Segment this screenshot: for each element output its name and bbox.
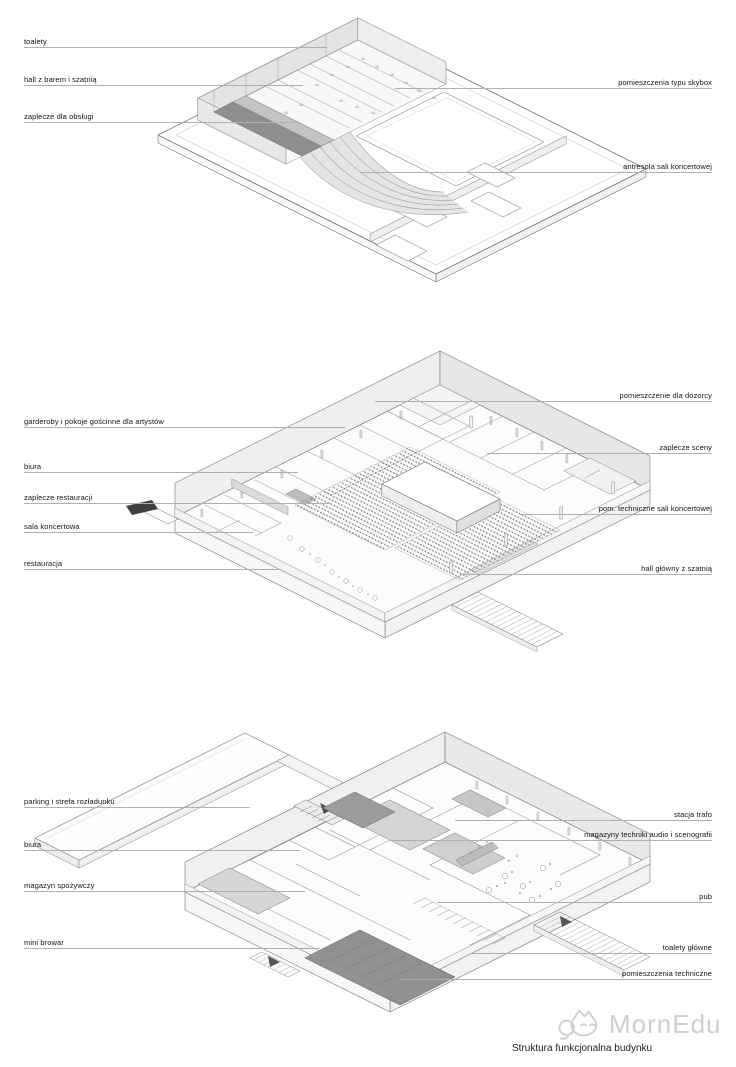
label-skybox: pomieszczenia typu skybox (395, 75, 712, 89)
label-text: magazyn spożywczy (24, 881, 94, 890)
label-hall-glowny: hall główny z szatnią (460, 561, 712, 575)
label-text: magazyny techniki audio i scenografii (584, 830, 712, 839)
label-text: hall z barem i szatnią (24, 75, 97, 84)
label-pom-techniczne-sali: pom. techniczne sali koncertowej (520, 501, 712, 515)
label-text: hall główny z szatnią (641, 564, 712, 573)
label-mini-browar: mini browar (24, 935, 320, 949)
label-zaplecze-restauracji: zaplecze restauracji (24, 490, 332, 504)
label-text: zaplecze dla obsługi (24, 112, 94, 121)
label-zaplecze-obslugi: zaplecze dla obsługi (24, 109, 300, 123)
label-text: toalety główne (663, 943, 712, 952)
label-hall-z-barem: hall z barem i szatnią (24, 72, 303, 86)
label-zaplecze-sceny: zaplecze sceny (487, 440, 712, 454)
label-magazyny-techniki: magazyny techniki audio i scenografii (390, 827, 712, 841)
label-text: stacja trafo (674, 810, 712, 819)
label-biura-middle: biura (24, 459, 298, 473)
label-text: pomieszczenie dla dozorcy (619, 391, 712, 400)
label-text: biura (24, 462, 41, 471)
top-floor-plan (158, 18, 646, 282)
label-dozorca: pomieszczenie dla dozorcy (375, 388, 712, 402)
page: toalety hall z barem i szatnią zaplecze … (0, 0, 736, 1067)
label-text: toalety (24, 37, 47, 46)
label-antresola: antresola sali koncertowej (360, 159, 712, 173)
label-stacja-trafo: stacja trafo (455, 807, 712, 821)
label-text: pomieszczenia typu skybox (618, 78, 712, 87)
label-text: zaplecze restauracji (24, 493, 92, 502)
label-garderoby: garderoby i pokoje gościnne dla artystów (24, 414, 345, 428)
figure-caption: Struktura funkcjonalna budynku (512, 1043, 652, 1054)
entrance-stairs (452, 592, 563, 652)
label-text: pomieszczenia techniczne (622, 969, 712, 978)
label-toalety-glowne: toalety główne (470, 940, 712, 954)
label-toalety: toalety (24, 34, 327, 48)
watermark: MornEdu (556, 1004, 722, 1044)
label-sala-koncertowa: sala koncertowa (24, 519, 253, 533)
label-text: antresola sali koncertowej (623, 162, 712, 171)
label-text: mini browar (24, 938, 64, 947)
label-text: restauracja (24, 559, 62, 568)
label-parking: parking i strefa rozładunku (24, 794, 250, 808)
label-text: biura (24, 840, 41, 849)
label-text: parking i strefa rozładunku (24, 797, 115, 806)
label-restauracja: restauracja (24, 556, 278, 570)
label-pomieszczenia-techniczne: pomieszczenia techniczne (400, 966, 712, 980)
label-magazyn-spozywczy: magazyn spożywczy (24, 878, 305, 892)
watermark-logo-icon (556, 1004, 604, 1044)
label-biura-bottom: biura (24, 837, 300, 851)
label-text: sala koncertowa (24, 522, 80, 531)
label-text: pom. techniczne sali koncertowej (599, 504, 712, 513)
label-text: zaplecze sceny (659, 443, 712, 452)
watermark-text: MornEdu (609, 1009, 722, 1040)
label-pub: pub (437, 889, 712, 903)
label-text: pub (699, 892, 712, 901)
label-text: garderoby i pokoje gościnne dla artystów (24, 417, 164, 426)
